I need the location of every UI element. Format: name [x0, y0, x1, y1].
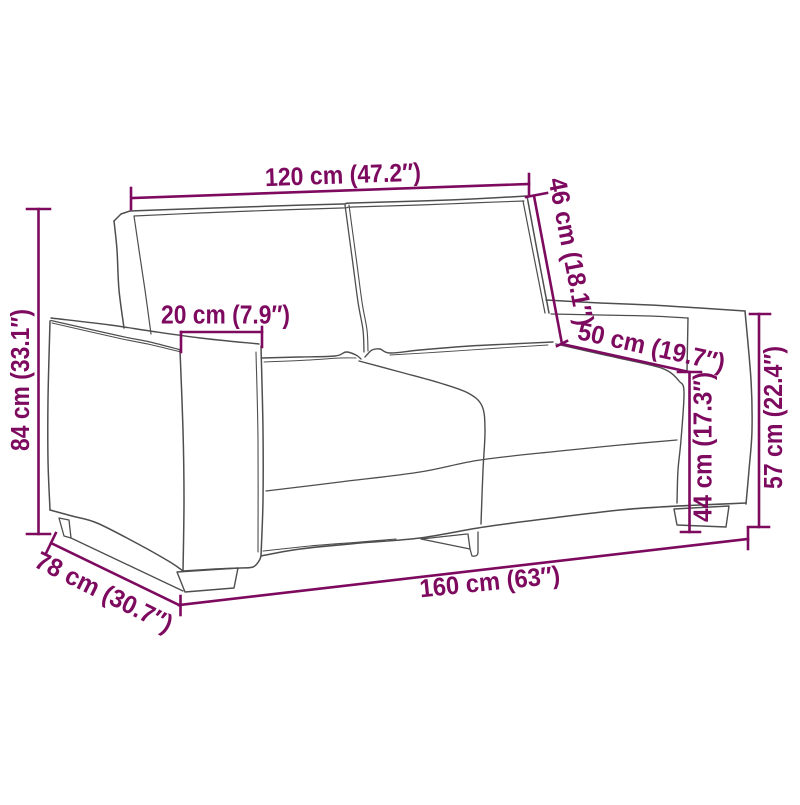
- svg-text:20 cm (7.9″): 20 cm (7.9″): [161, 301, 290, 329]
- svg-text:57 cm (22.4″): 57 cm (22.4″): [760, 346, 788, 489]
- svg-text:84 cm (33.1″): 84 cm (33.1″): [7, 309, 35, 451]
- svg-text:120 cm (47.2″): 120 cm (47.2″): [265, 159, 422, 192]
- svg-text:44 cm (17.3″): 44 cm (17.3″): [689, 372, 717, 522]
